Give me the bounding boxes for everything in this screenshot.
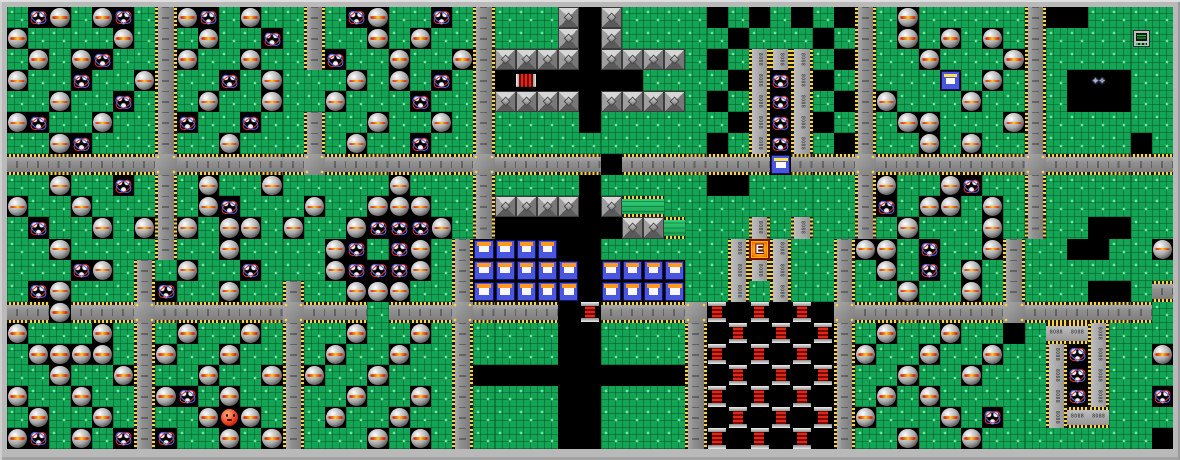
tile-base: [1046, 112, 1067, 133]
tile-disk-orange: [622, 260, 643, 281]
tile-base: [71, 365, 92, 386]
tile-coil: [791, 386, 812, 407]
tile-zonk: [389, 196, 410, 217]
tile-base: [770, 28, 791, 49]
tile-base: [325, 428, 346, 449]
tile-base: [1131, 344, 1152, 365]
tile-base: [473, 386, 494, 407]
tile-disk-orange: [601, 260, 622, 281]
tile-chip-v: 8088: [749, 217, 770, 238]
tile-infotron: [92, 49, 113, 70]
tile-road-h: [1046, 302, 1067, 323]
tile-base: [919, 428, 940, 449]
tile-base: [304, 175, 325, 196]
tile-base: [113, 49, 134, 70]
tile-road-v: [685, 365, 706, 386]
tile-base: [1109, 133, 1130, 154]
tile-base: [1088, 49, 1109, 70]
tile-disk-orange: [473, 281, 494, 302]
tile-zonk: [876, 260, 897, 281]
tile-zonk: [261, 175, 282, 196]
tile-base: [855, 323, 876, 344]
tile-base: [28, 365, 49, 386]
tile-disk-orange: [495, 239, 516, 260]
tile-disk-orange: [558, 281, 579, 302]
tile-base: [367, 344, 388, 365]
tile-base: [367, 407, 388, 428]
tile-base: [325, 217, 346, 238]
tile-base: [601, 344, 622, 365]
tile-zonk: [92, 407, 113, 428]
tile-road-v: [855, 7, 876, 28]
tile-road-h: [473, 302, 494, 323]
tile-disk-orange: [473, 260, 494, 281]
tile-chip-v: 8088: [1088, 344, 1109, 365]
tile-base: [940, 7, 961, 28]
tile-base: [1003, 365, 1024, 386]
tile-coil: [791, 344, 812, 365]
tile-zonk: [940, 175, 961, 196]
tile-road-h: [410, 302, 431, 323]
tile-road-v: [134, 365, 155, 386]
tile-base: [346, 49, 367, 70]
tile-road-h: [219, 302, 240, 323]
tile-base: [664, 175, 685, 196]
tile-road-h: [961, 302, 982, 323]
tile-chip-v: 8088: [1046, 386, 1067, 407]
tile-zonk: [7, 323, 28, 344]
tile-base: [855, 281, 876, 302]
tile-zonk: [897, 428, 918, 449]
tile-space: [707, 49, 728, 70]
tile-zonk: [452, 49, 473, 70]
tile-zonk: [410, 386, 431, 407]
tile-base: [664, 344, 685, 365]
tile-space: [601, 154, 622, 175]
tile-space: [579, 386, 600, 407]
tile-base: [770, 196, 791, 217]
tile-space: [791, 407, 812, 428]
tile-zonk: [198, 28, 219, 49]
tile-road-v: [855, 70, 876, 91]
tile-base: [919, 7, 940, 28]
tile-zonk: [367, 7, 388, 28]
tile-road-v: [155, 70, 176, 91]
tile-base: [325, 70, 346, 91]
tile-road-v: [834, 428, 855, 449]
tile-space: [813, 302, 834, 323]
tile-base: [897, 133, 918, 154]
tile-base: [7, 175, 28, 196]
tile-base: [855, 386, 876, 407]
tile-base: [1046, 260, 1067, 281]
tile-base: [28, 28, 49, 49]
tile-road-v: [134, 344, 155, 365]
tile-road-h: [431, 302, 452, 323]
tile-road-v: [155, 217, 176, 238]
tile-infotron: [240, 112, 261, 133]
tile-zonk: [367, 196, 388, 217]
tile-road-v: [834, 239, 855, 260]
tile-zonk: [7, 28, 28, 49]
tile-space: [707, 133, 728, 154]
tile-base: [728, 196, 749, 217]
tile-base: [7, 365, 28, 386]
tile-base: [1152, 28, 1173, 49]
tile-disk-orange: [516, 239, 537, 260]
tile-base: [240, 239, 261, 260]
tile-base: [1152, 133, 1173, 154]
tile-zonk: [876, 386, 897, 407]
tile-space: [579, 175, 600, 196]
tile-zonk: [261, 365, 282, 386]
tile-base: [134, 175, 155, 196]
tile-space: [1109, 91, 1130, 112]
tile-base: [410, 281, 431, 302]
tile-road-h: [1088, 154, 1109, 175]
tile-road-v: [685, 323, 706, 344]
tile-base: [622, 133, 643, 154]
tile-base: [1003, 196, 1024, 217]
tile-base: [261, 133, 282, 154]
tile-zonk: [198, 365, 219, 386]
tile-wall-pyramid: [664, 49, 685, 70]
tile-road-v: [155, 239, 176, 260]
tile-base: [155, 365, 176, 386]
tile-zonk: [71, 196, 92, 217]
tile-road-h: [1067, 154, 1088, 175]
tile-base: [261, 407, 282, 428]
tile-base: [240, 70, 261, 91]
tile-base: [49, 407, 70, 428]
tile-base: [304, 281, 325, 302]
tile-zonk: [7, 428, 28, 449]
tile-base: [49, 428, 70, 449]
tile-base: [537, 28, 558, 49]
tile-base: [113, 217, 134, 238]
tile-base: [516, 175, 537, 196]
map-frame: 80888088808880888088✦✧808880888088808880…: [0, 0, 1180, 460]
tile-base: [622, 428, 643, 449]
tile-space: [770, 344, 791, 365]
tile-road-h: [155, 302, 176, 323]
tile-base: [367, 386, 388, 407]
tile-chip-v: 8088: [1088, 365, 1109, 386]
tile-base: [283, 91, 304, 112]
tile-base: [261, 323, 282, 344]
tile-chip-v: 8088: [770, 281, 791, 302]
tile-road-h: [1152, 154, 1173, 175]
tile-base: [283, 7, 304, 28]
tile-green-pcb: [664, 217, 685, 238]
tile-space: [749, 407, 770, 428]
tile-base: [410, 70, 431, 91]
tile-base: [389, 323, 410, 344]
tile-murphy: [219, 407, 240, 428]
tile-base: [961, 323, 982, 344]
tile-base: [728, 133, 749, 154]
tile-base: [749, 28, 770, 49]
tile-base: [685, 112, 706, 133]
tile-base: [834, 112, 855, 133]
tile-electron: ✦✧: [1088, 70, 1109, 91]
tile-space: [579, 428, 600, 449]
tile-infotron: [431, 7, 452, 28]
tile-space: [579, 49, 600, 70]
tile-road-v: [855, 133, 876, 154]
tile-road-cross: [1025, 154, 1046, 175]
tile-zonk: [410, 323, 431, 344]
tile-base: [685, 196, 706, 217]
tile-base: [940, 49, 961, 70]
tile-base: [961, 217, 982, 238]
tile-base: [897, 239, 918, 260]
tile-base: [516, 28, 537, 49]
tile-base: [961, 407, 982, 428]
tile-road-v: [283, 386, 304, 407]
tile-base: [134, 28, 155, 49]
tile-zonk: [919, 49, 940, 70]
tile-road-h: [813, 154, 834, 175]
tile-base: [643, 70, 664, 91]
tile-zonk: [346, 217, 367, 238]
tile-base: [113, 344, 134, 365]
tile-base: [940, 239, 961, 260]
tile-base: [389, 428, 410, 449]
tile-base: [770, 217, 791, 238]
tile-base: [283, 112, 304, 133]
tile-road-h: [1131, 154, 1152, 175]
tile-space: [1131, 133, 1152, 154]
tile-zonk: [346, 133, 367, 154]
tile-base: [240, 281, 261, 302]
tile-road-h: [834, 154, 855, 175]
tile-road-h: [622, 154, 643, 175]
tile-base: [219, 112, 240, 133]
tile-road-v: [473, 70, 494, 91]
tile-base: [177, 344, 198, 365]
tile-base: [198, 386, 219, 407]
tile-zonk: [198, 91, 219, 112]
tile-base: [834, 28, 855, 49]
tile-infotron: [431, 70, 452, 91]
tile-road-h: [71, 302, 92, 323]
tile-road-h: [219, 154, 240, 175]
tile-zonk: [389, 281, 410, 302]
tile-base: [325, 365, 346, 386]
tile-base: [431, 365, 452, 386]
tile-zonk: [49, 344, 70, 365]
tile-base: [643, 7, 664, 28]
tile-base: [1152, 196, 1173, 217]
tile-zonk: [49, 302, 70, 323]
tile-road-h: [558, 154, 579, 175]
tile-base: [389, 386, 410, 407]
tile-space: [813, 70, 834, 91]
tile-zonk: [367, 428, 388, 449]
tile-road-h: [198, 154, 219, 175]
tile-space: [1109, 70, 1130, 91]
tile-road-h: [261, 154, 282, 175]
tile-road-v: [155, 112, 176, 133]
tile-zonk: [367, 281, 388, 302]
tile-base: [431, 323, 452, 344]
tile-base: [685, 133, 706, 154]
tile-base: [685, 7, 706, 28]
tile-road-h: [643, 154, 664, 175]
tile-zonk: [240, 49, 261, 70]
tile-zonk: [1003, 49, 1024, 70]
tile-base: [410, 49, 431, 70]
tile-base: [240, 428, 261, 449]
tile-base: [28, 196, 49, 217]
tile-base: [473, 407, 494, 428]
tile-road-h: [1131, 302, 1152, 323]
tile-base: [113, 196, 134, 217]
tile-base: [919, 323, 940, 344]
tile-base: [1109, 344, 1130, 365]
tile-road-h: [897, 154, 918, 175]
tile-chip-v: 8088: [791, 70, 812, 91]
tile-base: [1025, 344, 1046, 365]
tile-base: [961, 196, 982, 217]
tile-zonk: [7, 386, 28, 407]
tile-base: [28, 323, 49, 344]
tile-base: [1109, 386, 1130, 407]
tile-zonk: [961, 365, 982, 386]
tile-base: [304, 91, 325, 112]
tile-zonk: [897, 365, 918, 386]
tile-road-v: [855, 217, 876, 238]
tile-base: [1088, 28, 1109, 49]
tile-zonk: [982, 70, 1003, 91]
tile-base: [940, 91, 961, 112]
tile-space: [770, 428, 791, 449]
tile-road-h: [431, 154, 452, 175]
tile-base: [961, 49, 982, 70]
tile-zonk: [71, 428, 92, 449]
tile-base: [919, 217, 940, 238]
tile-road-h: [495, 154, 516, 175]
tile-base: [537, 175, 558, 196]
tile-base: [622, 407, 643, 428]
tile-road-h: [516, 154, 537, 175]
tile-base: [495, 7, 516, 28]
tile-base: [7, 49, 28, 70]
tile-zonk: [855, 407, 876, 428]
tile-coil: [813, 323, 834, 344]
tile-space: [834, 91, 855, 112]
tile-base: [452, 112, 473, 133]
tile-road-v: [134, 323, 155, 344]
tile-base: [537, 407, 558, 428]
tile-base: [622, 175, 643, 196]
tile-base: [261, 7, 282, 28]
tile-zonk: [431, 112, 452, 133]
tile-road-h: [113, 154, 134, 175]
tile-chip-v: 8088: [749, 133, 770, 154]
tile-space: [707, 323, 728, 344]
tile-base: [834, 70, 855, 91]
tile-base: [240, 365, 261, 386]
tile-base: [495, 386, 516, 407]
tile-coil: [707, 302, 728, 323]
tile-base: [389, 365, 410, 386]
tile-base: [240, 175, 261, 196]
tile-chip-v: 8088: [749, 112, 770, 133]
level-playfield[interactable]: 80888088808880888088✦✧808880888088808880…: [7, 7, 1173, 449]
tile-base: [643, 407, 664, 428]
tile-base: [1025, 407, 1046, 428]
tile-base: [431, 91, 452, 112]
tile-space: [813, 112, 834, 133]
tile-zonk: [113, 365, 134, 386]
tile-space: [473, 365, 494, 386]
tile-space: [601, 365, 622, 386]
tile-zonk: [325, 344, 346, 365]
tile-chip-h: 8088: [1067, 323, 1088, 344]
tile-infotron: [410, 91, 431, 112]
tile-base: [813, 217, 834, 238]
tile-base: [770, 175, 791, 196]
tile-base: [261, 344, 282, 365]
tile-zonk: [325, 239, 346, 260]
tile-base: [791, 260, 812, 281]
tile-base: [49, 217, 70, 238]
tile-base: [7, 7, 28, 28]
tile-space: [579, 281, 600, 302]
tile-base: [410, 365, 431, 386]
tile-base: [1046, 133, 1067, 154]
tile-base: [452, 217, 473, 238]
tile-infotron: [876, 196, 897, 217]
tile-space: [537, 217, 558, 238]
tile-base: [1003, 7, 1024, 28]
tile-road-v: [452, 239, 473, 260]
tile-road-cross: [304, 154, 325, 175]
tile-zonk: [876, 91, 897, 112]
tile-infotron: [219, 196, 240, 217]
tile-base: [876, 365, 897, 386]
tile-base: [961, 7, 982, 28]
tile-base: [685, 175, 706, 196]
tile-base: [325, 112, 346, 133]
tile-zonk: [219, 344, 240, 365]
tile-base: [261, 260, 282, 281]
tile-space: [664, 365, 685, 386]
tile-road-v: [1025, 91, 1046, 112]
tile-base: [579, 133, 600, 154]
tile-green-pcb: [622, 196, 643, 217]
tile-road-h: [1109, 302, 1130, 323]
tile-base: [325, 323, 346, 344]
tile-space: [622, 365, 643, 386]
tile-zonk: [219, 386, 240, 407]
tile-base: [283, 239, 304, 260]
tile-base: [643, 112, 664, 133]
tile-base: [410, 175, 431, 196]
tile-base: [71, 28, 92, 49]
tile-road-v: [283, 428, 304, 449]
tile-wall-pyramid: [643, 91, 664, 112]
tile-road-h: [791, 154, 812, 175]
tile-base: [325, 386, 346, 407]
tile-base: [198, 344, 219, 365]
tile-space: [1088, 239, 1109, 260]
tile-road-v: [855, 28, 876, 49]
tile-base: [1067, 28, 1088, 49]
tile-coil: [749, 428, 770, 449]
